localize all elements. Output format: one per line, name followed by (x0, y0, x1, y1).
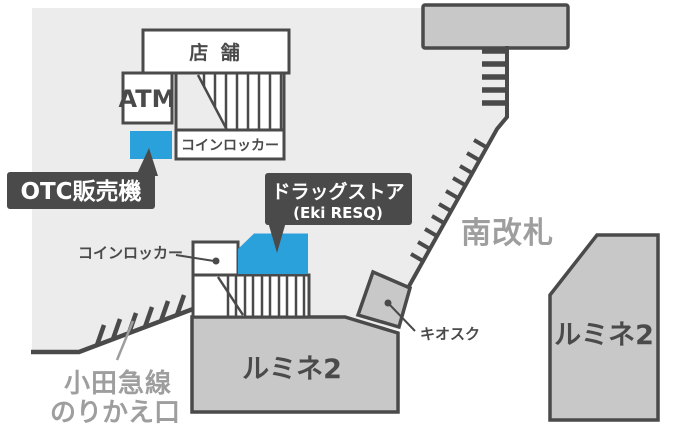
station-map-page: ルミネ2 店 舗 ATM コインロッカー (0, 0, 674, 433)
odakyu-label-line1: 小田急線 (64, 368, 172, 399)
odakyu-label-line2: のりかえ口 (50, 398, 180, 428)
coin-locker-leader-dot (213, 258, 220, 265)
shop-label: 店 舗 (189, 41, 243, 64)
stairs-lower-box (193, 275, 309, 317)
drugstore-marker (238, 234, 308, 275)
drugstore-callout-label-line2: (Eki RESQ) (293, 204, 383, 222)
atm-label: ATM (119, 85, 176, 113)
coin-locker-upper-label: コインロッカー (181, 138, 279, 154)
south-gate-label: 南改札 (461, 216, 554, 251)
drugstore-callout-label-line1: ドラッグストア (271, 180, 404, 203)
station-map-svg: ルミネ2 店 舗 ATM コインロッカー (0, 0, 674, 433)
otc-callout-label: OTC販売機 (20, 179, 141, 205)
lumine2-bottom-label: ルミネ2 (242, 354, 342, 385)
kiosk-label: キオスク (420, 325, 480, 343)
stairs-lower (193, 275, 309, 317)
lumine2-right-label: ルミネ2 (554, 320, 654, 351)
stairs-upper (176, 73, 284, 132)
passage-structure-box (423, 5, 568, 48)
coin-locker-lower-label: コインロッカー (78, 244, 183, 262)
